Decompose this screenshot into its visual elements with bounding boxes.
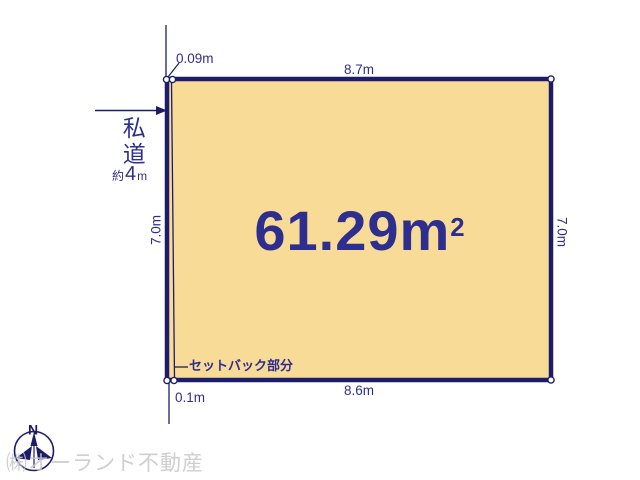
left-edge-dimension: 7.0m — [150, 215, 165, 245]
company-watermark: ㈱オーランド不動産 — [6, 447, 204, 477]
land-area-exponent: 2 — [450, 214, 465, 242]
road-width-value: 4 — [125, 163, 136, 185]
right-edge-dimension: 7.0m — [554, 217, 569, 247]
survey-point-bottom-left-setback — [171, 377, 177, 383]
land-area-label: 61.29m2 — [254, 200, 465, 262]
road-width-prefix: 約 — [112, 170, 124, 183]
land-area-value: 61.29 — [254, 199, 399, 262]
top-edge-dimension: 8.7m — [331, 63, 387, 78]
land-area-unit: m — [400, 199, 451, 262]
compass-north-label: N — [28, 422, 38, 437]
survey-point-top-left — [163, 76, 169, 82]
survey-point-bottom-right — [548, 377, 554, 383]
road-width-unit: m — [137, 170, 147, 183]
survey-point-top-right — [548, 76, 554, 82]
setback-bottom-dimension: 0.1m — [175, 391, 205, 406]
private-road-label: 私道 — [119, 116, 144, 168]
survey-point-bottom-left — [164, 377, 170, 383]
setback-area-label: セットバック部分 — [189, 359, 293, 373]
survey-point-top-left-setback — [169, 76, 175, 82]
bottom-edge-dimension: 8.6m — [331, 384, 387, 399]
setback-top-dimension: 0.09m — [176, 52, 214, 67]
land-plot-diagram: 0.09m 8.7m 8.6m 7.0m 7.0m 61.29m2 私道 約 4… — [0, 0, 640, 480]
private-road-width-label: 約 4 m — [112, 163, 147, 185]
